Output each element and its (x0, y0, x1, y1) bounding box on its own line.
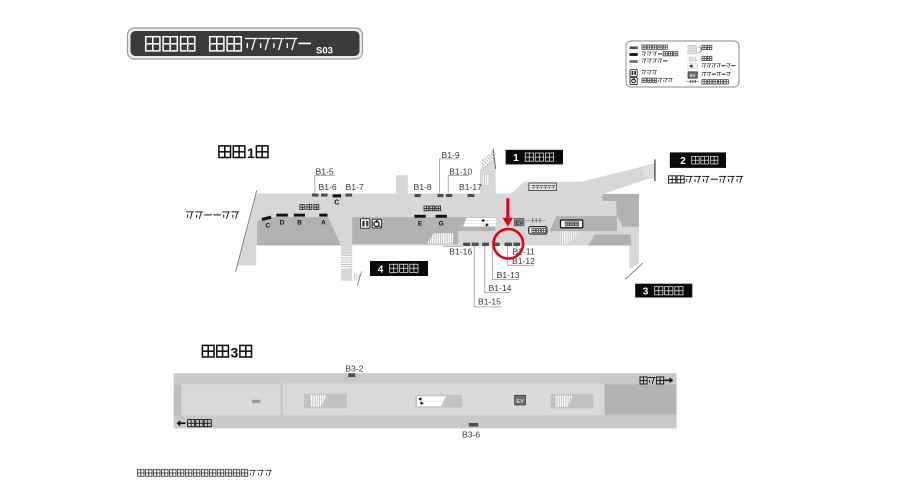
svg-text:B1-16: B1-16 (449, 247, 472, 257)
svg-text:1: 1 (513, 153, 519, 164)
svg-text:B3-2: B3-2 (345, 364, 363, 374)
svg-text:E: E (418, 220, 423, 227)
svg-text:EV: EV (515, 220, 523, 226)
svg-text:2: 2 (680, 156, 686, 167)
svg-text:A: A (321, 219, 326, 226)
svg-text:B: B (297, 219, 302, 226)
svg-text:B3-6: B3-6 (462, 430, 480, 440)
svg-text:B1-6: B1-6 (319, 182, 337, 192)
svg-text:B1-10: B1-10 (449, 166, 472, 176)
svg-text:B1-8: B1-8 (414, 182, 432, 192)
svg-text:B1-5: B1-5 (316, 166, 334, 176)
svg-text:B1-15: B1-15 (478, 296, 501, 306)
svg-text:3: 3 (231, 345, 239, 361)
svg-text:S03: S03 (316, 46, 333, 57)
svg-text:C: C (334, 200, 339, 207)
svg-text:D: D (280, 219, 285, 226)
svg-text:B1-13: B1-13 (497, 270, 520, 280)
svg-text:4: 4 (378, 265, 384, 276)
svg-text:B1-14: B1-14 (489, 283, 512, 293)
svg-text:EV: EV (516, 399, 524, 405)
svg-text:EV: EV (690, 73, 696, 78)
svg-text:C: C (265, 223, 270, 230)
svg-text:B1-9: B1-9 (442, 150, 460, 160)
svg-text:G: G (439, 220, 444, 227)
svg-text:1: 1 (247, 145, 255, 161)
svg-text:B1-17: B1-17 (459, 182, 482, 192)
svg-text:B1-7: B1-7 (346, 182, 364, 192)
svg-text:3: 3 (643, 286, 649, 297)
